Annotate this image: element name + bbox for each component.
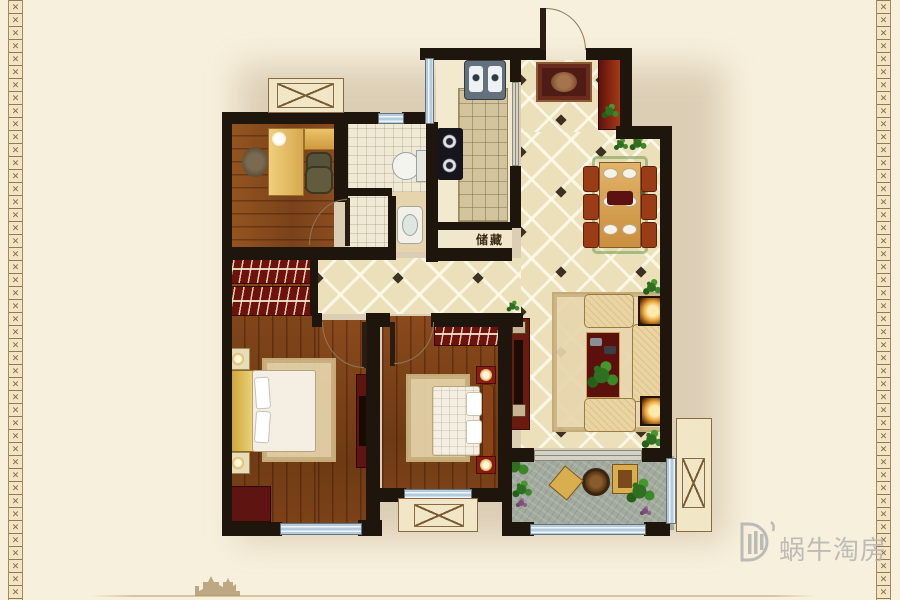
- plant-icon: [633, 139, 641, 147]
- plant-icon: [594, 368, 609, 383]
- plant-icon: [605, 107, 613, 115]
- castle-watermark: [190, 574, 242, 598]
- wall: [434, 248, 512, 261]
- master-tv-screen: [359, 396, 366, 446]
- tile-diamond: [521, 226, 527, 237]
- study-armchair: [242, 147, 268, 177]
- balcony-chair-seat: [618, 470, 632, 488]
- sink-basin: [402, 214, 418, 236]
- tile-diamond: [521, 146, 527, 157]
- bay-window-x: [277, 83, 334, 108]
- wall: [312, 313, 322, 327]
- plant-icon: [617, 141, 624, 148]
- kitchen-counter: [458, 88, 508, 222]
- wall: [222, 522, 282, 536]
- window: [666, 458, 676, 524]
- dining-chair: [641, 194, 657, 220]
- table-lamp: [480, 459, 492, 471]
- flower-icon: [642, 508, 648, 514]
- master-dresser: [227, 486, 271, 522]
- dining-chair: [583, 166, 599, 192]
- pillow: [466, 392, 482, 416]
- window: [425, 58, 434, 124]
- window: [530, 524, 646, 535]
- tile-diamond: [635, 266, 646, 277]
- wall: [434, 222, 512, 230]
- stove-burner-1: [442, 134, 457, 149]
- dining-chair: [583, 194, 599, 220]
- balcony-table: [582, 468, 610, 496]
- entry-rug-medallion: [551, 72, 577, 92]
- pillow: [466, 420, 482, 444]
- wall: [348, 188, 392, 196]
- wall: [350, 112, 380, 124]
- stove-burner-2: [442, 158, 457, 173]
- plant-icon: [646, 434, 657, 445]
- wall: [644, 522, 670, 536]
- ornamental-border-left: ✕✕✕✕✕✕✕✕✕✕✕✕✕✕✕✕✕✕✕✕✕✕✕✕✕✕✕✕✕✕✕✕✕✕✕✕✕✕✕✕…: [8, 0, 23, 600]
- wall: [420, 48, 546, 60]
- place-setting: [622, 224, 637, 235]
- window: [378, 113, 404, 124]
- kitchen-sink-basin-left: [469, 66, 483, 92]
- wall: [388, 196, 396, 252]
- floorplan-page: ✕✕✕✕✕✕✕✕✕✕✕✕✕✕✕✕✕✕✕✕✕✕✕✕✕✕✕✕✕✕✕✕✕✕✕✕✕✕✕✕…: [0, 0, 900, 600]
- wall: [222, 112, 232, 536]
- tv-screen: [514, 340, 523, 408]
- tile-diamond: [472, 272, 483, 283]
- table-lamp: [232, 457, 244, 469]
- kitchen-sink-basin-right: [488, 66, 502, 92]
- place-setting: [603, 224, 618, 235]
- shoe-cabinet: [598, 58, 622, 130]
- wall: [222, 247, 396, 260]
- wall: [620, 48, 632, 132]
- wall: [310, 252, 318, 314]
- place-setting: [603, 168, 618, 179]
- sofa-bottom-seat: [584, 398, 636, 432]
- dining-chair: [583, 222, 599, 248]
- dining-chair: [641, 166, 657, 192]
- tile-diamond: [521, 74, 527, 85]
- balcony-sliding-door: [534, 450, 642, 461]
- coffee-table-item: [590, 338, 602, 346]
- storage-room-label: 储藏: [462, 231, 518, 248]
- tile-diamond: [555, 186, 566, 197]
- flower-icon: [518, 500, 524, 506]
- place-setting: [622, 168, 637, 179]
- pillow: [254, 411, 271, 444]
- bathroom-shower-area: [348, 192, 390, 252]
- wall: [616, 126, 672, 139]
- watermark-logo-mark: [733, 518, 779, 566]
- pillow: [254, 377, 271, 410]
- dining-centerpiece: [607, 191, 633, 205]
- sofa-top-seat: [584, 294, 634, 328]
- desk-lamp: [272, 132, 286, 146]
- tile-diamond: [555, 114, 566, 125]
- corridor: [318, 258, 521, 314]
- wall: [660, 139, 672, 454]
- ornamental-border-right: ✕✕✕✕✕✕✕✕✕✕✕✕✕✕✕✕✕✕✕✕✕✕✕✕✕✕✕✕✕✕✕✕✕✕✕✕✕✕✕✕…: [876, 0, 891, 600]
- plant-icon: [517, 485, 527, 495]
- wall: [510, 166, 521, 228]
- plant-icon: [633, 485, 647, 499]
- wall: [426, 122, 438, 262]
- coffee-table-item: [604, 346, 616, 354]
- wall: [366, 315, 380, 524]
- tile-diamond: [318, 272, 324, 283]
- kitchen-sliding-door: [512, 82, 519, 166]
- entry-door-arc: [546, 8, 586, 50]
- speaker-bottom: [512, 404, 526, 417]
- wall: [222, 112, 350, 124]
- plant-icon: [647, 283, 656, 292]
- second-headboard: [482, 384, 494, 458]
- wall: [510, 54, 521, 82]
- office-chair-2: [305, 166, 333, 194]
- plant-icon: [509, 303, 515, 309]
- bay-window-x: [414, 504, 464, 527]
- table-lamp: [480, 369, 492, 381]
- dining-chair: [641, 222, 657, 248]
- watermark-text: 蜗牛淘房: [779, 530, 887, 567]
- shaft-window-x: [682, 458, 705, 508]
- tile-diamond: [392, 272, 403, 283]
- window: [280, 523, 362, 535]
- master-wardrobe-row-2: [224, 286, 312, 316]
- wall: [334, 122, 348, 202]
- tile-diamond: [555, 266, 566, 277]
- table-lamp: [232, 353, 244, 365]
- watermark-logo: 蜗牛淘房: [733, 514, 893, 569]
